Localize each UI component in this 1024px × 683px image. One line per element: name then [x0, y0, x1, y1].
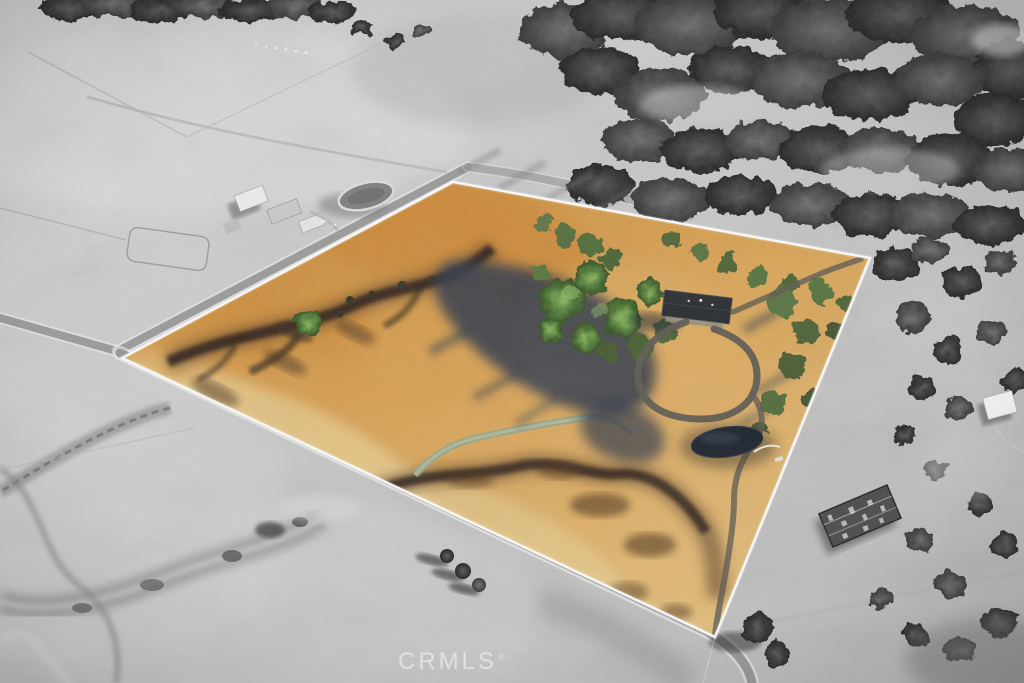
- aerial-property-photo: CRMLS®: [0, 0, 1024, 683]
- watermark-registered-symbol: ®: [498, 652, 505, 662]
- watermark-text: CRMLS: [398, 648, 497, 675]
- watermark: CRMLS®: [398, 648, 505, 675]
- photo-grain: [0, 0, 1024, 683]
